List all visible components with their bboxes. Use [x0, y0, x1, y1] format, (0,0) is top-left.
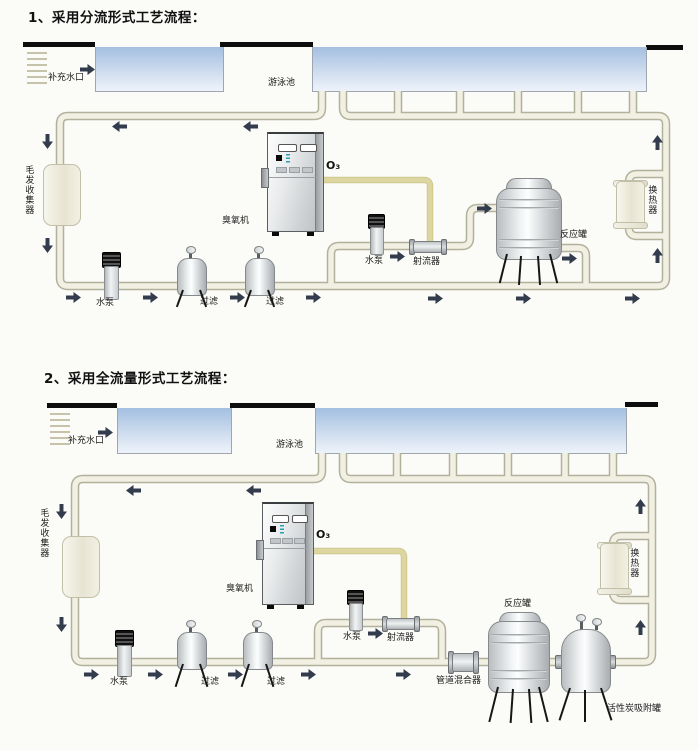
filter-label: 过滤 — [267, 677, 285, 687]
document-canvas: 1、采用分流形式工艺流程： 2、采用全流量形式工艺流程： — [0, 0, 698, 750]
cabinet-keypad — [302, 167, 313, 173]
tank-ring — [499, 207, 559, 209]
cabinet-vent-slot — [278, 144, 297, 152]
injector-label: 射流器 — [413, 257, 440, 267]
hair-collector-label: 毛发收集器 — [23, 165, 33, 215]
carbon-tank-label: 活性炭吸附罐 — [607, 704, 661, 714]
makeup-inlet-label: 补充水口 — [68, 436, 104, 446]
heat-exchanger — [616, 181, 645, 228]
tank-ring — [491, 642, 547, 644]
cabinet-keypad — [289, 167, 300, 173]
pool-label: 游泳池 — [276, 440, 303, 450]
filter-vent-icon — [254, 246, 264, 254]
heat-exchanger-label: 换热器 — [646, 185, 656, 215]
cabinet-vent-slot — [272, 515, 289, 523]
ozone-gas-label: O₃ — [326, 160, 340, 173]
heat-exchanger — [600, 543, 629, 594]
tank-ring — [499, 247, 559, 249]
hair-collector — [43, 164, 81, 226]
cabinet-keypad — [294, 538, 305, 544]
tank-ring — [491, 634, 547, 636]
water-pipe — [60, 91, 666, 662]
ozone-generator-cabinet — [267, 132, 324, 232]
filter-label: 过滤 — [266, 297, 284, 307]
indicator-lights-icon — [286, 154, 290, 164]
booster-pump-label: 水泵 — [365, 256, 383, 266]
reaction-tank — [496, 188, 562, 260]
carbon-tank-valve-icon — [592, 618, 602, 626]
filter-label: 过滤 — [201, 677, 219, 687]
cabinet-keypad — [282, 538, 293, 544]
hair-collector — [62, 536, 100, 598]
booster-pump — [370, 227, 384, 255]
heat-exchanger-label: 换热器 — [628, 548, 638, 578]
cabinet-handle — [256, 540, 264, 560]
main-pump — [104, 266, 119, 300]
cabinet-keypad — [276, 167, 287, 173]
carbon-tank-valve-icon — [576, 614, 586, 622]
cabinet-foot — [307, 232, 314, 236]
indicator-lights-icon — [280, 525, 284, 535]
filter-vent-icon — [252, 620, 262, 628]
injector-flange — [441, 239, 447, 255]
heat-exchanger-flange — [597, 588, 632, 595]
cabinet-vent-slot — [300, 144, 317, 152]
water-pipe-outline — [60, 91, 666, 662]
cabinet-button — [276, 155, 282, 161]
main-pump — [117, 645, 132, 677]
cabinet-button — [270, 526, 276, 532]
pool-label: 游泳池 — [268, 78, 295, 88]
pump-label: 水泵 — [96, 298, 114, 308]
heat-exchanger-flange — [613, 222, 648, 229]
tank-ring — [499, 239, 559, 241]
injector-label: 射流器 — [387, 633, 414, 643]
reaction-tank — [488, 621, 550, 693]
tank-leg — [584, 690, 586, 722]
filter-vent-icon — [186, 620, 196, 628]
injector-flange — [414, 616, 420, 632]
ozone-generator-cabinet — [262, 502, 314, 605]
cabinet-foot — [267, 605, 274, 609]
booster-pump — [349, 603, 363, 631]
cabinet-handle — [261, 168, 269, 188]
booster-pump-label: 水泵 — [343, 632, 361, 642]
cabinet-panel-divider — [263, 548, 306, 549]
tank-ring — [499, 199, 559, 201]
activated-carbon-tank — [561, 629, 611, 693]
filter-label: 过滤 — [200, 297, 218, 307]
reaction-tank-label: 反应罐 — [504, 599, 531, 609]
cabinet-foot — [297, 605, 304, 609]
cabinet-foot — [272, 232, 279, 236]
ozone-generator-label: 臭氧机 — [222, 216, 249, 226]
jet-injector — [386, 618, 416, 630]
mixer-flange — [473, 651, 479, 674]
pipeline-mixer-label: 管道混合器 — [436, 676, 481, 686]
reaction-tank-label: 反应罐 — [560, 230, 587, 240]
pipeline-mixer — [452, 653, 475, 672]
jet-injector — [413, 241, 443, 253]
hair-collector-label: 毛发收集器 — [38, 508, 48, 558]
ozone-gas-label: O₃ — [316, 529, 330, 542]
ozone-generator-label: 臭氧机 — [226, 584, 253, 594]
cabinet-panel-divider — [268, 177, 316, 178]
filter-vent-icon — [186, 246, 196, 254]
tank-ring — [491, 670, 547, 672]
makeup-inlet-label: 补充水口 — [48, 73, 84, 83]
tank-ring — [491, 678, 547, 680]
cabinet-keypad — [270, 538, 281, 544]
pump-label: 水泵 — [110, 677, 128, 687]
cabinet-vent-slot — [292, 515, 308, 523]
